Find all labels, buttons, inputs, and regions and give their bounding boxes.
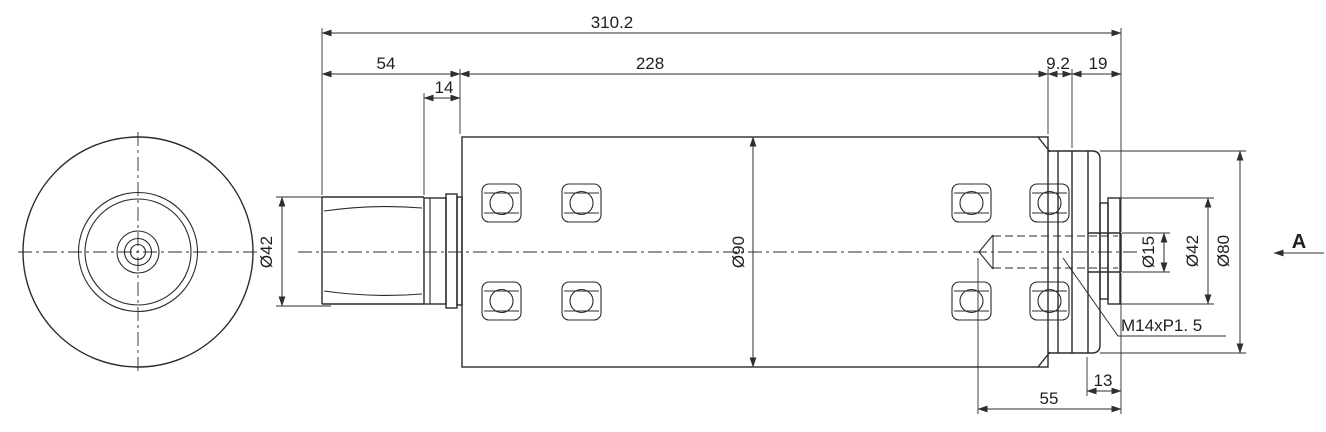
dim-body-length: 228: [636, 54, 664, 73]
front-view: [18, 132, 258, 372]
dim-tip-length: 13: [1094, 371, 1113, 390]
view-a-label: A: [1292, 231, 1306, 253]
dim-collar-width: 14: [435, 78, 454, 97]
bearing: [562, 282, 601, 320]
bearing: [562, 184, 601, 222]
rear-lip-ring: [1100, 203, 1108, 299]
dim-cap-diameter: Ø80: [1214, 235, 1233, 267]
dim-thread-depth: 55: [1040, 389, 1059, 408]
bearing: [952, 282, 991, 320]
shaft-bottom-surface-line: [324, 291, 422, 295]
thread-cone-lower: [979, 252, 993, 269]
drawing-sheet: 310.2 54 228 14 9.2 19 Ø42 Ø90 Ø15 Ø42 Ø…: [0, 0, 1326, 432]
collar-ring-c: [457, 197, 462, 305]
thread-cone-upper: [979, 235, 993, 252]
bearing: [482, 184, 521, 222]
collar-ring-a: [424, 198, 446, 304]
bearing: [482, 282, 521, 320]
dim-overall-length: 310.2: [591, 13, 634, 32]
rear-disc: [1108, 198, 1120, 304]
dim-disc-diameter: Ø42: [1183, 235, 1202, 267]
dim-shaft-length: 54: [377, 54, 396, 73]
dim-tip-diameter: Ø15: [1139, 236, 1158, 268]
dim-shaft-diameter: Ø42: [257, 236, 276, 268]
dimensions: 310.2 54 228 14 9.2 19 Ø42 Ø90 Ø15 Ø42 Ø…: [257, 13, 1246, 414]
thread-callout: M14xP1. 5: [1121, 316, 1202, 335]
bearing: [952, 184, 991, 222]
dim-rear-ring-width: 9.2: [1046, 54, 1070, 73]
shaft-top-surface-line: [324, 207, 422, 211]
side-view-shaft: [322, 194, 462, 308]
bearing: [1030, 282, 1069, 320]
technical-drawing: 310.2 54 228 14 9.2 19 Ø42 Ø90 Ø15 Ø42 Ø…: [0, 0, 1326, 432]
dim-body-diameter: Ø90: [729, 236, 748, 268]
dim-rear-end-length: 19: [1089, 54, 1108, 73]
collar-ring-b: [446, 194, 457, 308]
bearing: [1030, 184, 1069, 222]
view-direction-indicator: A: [1274, 231, 1324, 253]
